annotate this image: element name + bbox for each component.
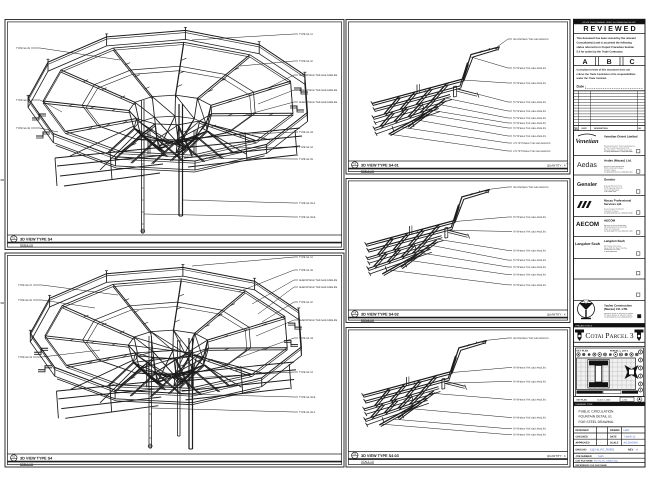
svg-text:This document has been revised: This document has been revised by the re… <box>577 37 636 40</box>
svg-text:75*75*8mm THK G&S ANGLES: 75*75*8mm THK G&S ANGLES <box>513 434 546 437</box>
svg-text:Venetian Orient Limited: Venetian Orient Limited <box>604 134 638 138</box>
svg-text:SHS150*8mm THK G&S ANGLES: SHS150*8mm THK G&S ANGLES <box>513 186 549 189</box>
svg-text:TYPE S4-05 B: TYPE S4-05 B <box>299 396 316 399</box>
svg-text:TYPE S4-08: TYPE S4-08 <box>16 127 31 130</box>
svg-text:TYPE S4-09: TYPE S4-09 <box>18 299 33 302</box>
svg-text:QUANTITY : 4: QUANTITY : 4 <box>547 312 566 316</box>
svg-text:R E V I E W E D: R E V I E W E D <box>583 24 635 33</box>
svg-text:-: - <box>600 435 601 438</box>
svg-text:75*75*8mm THK G&S ANGLES: 75*75*8mm THK G&S ANGLES <box>513 216 546 219</box>
svg-text:TYPE S4-09: TYPE S4-09 <box>16 47 31 50</box>
svg-text:under the Trade Contract.: under the Trade Contract. <box>577 77 608 80</box>
svg-text:A: A <box>582 59 587 66</box>
svg-text:L75 75*75*8mm THK G&S ANGLES: L75 75*75*8mm THK G&S ANGLES <box>513 150 551 153</box>
svg-text:TYPE S4-02: TYPE S4-02 <box>18 284 33 287</box>
svg-text:75*75*8mm THK G&S ANGLES: 75*75*8mm THK G&S ANGLES <box>513 67 546 70</box>
svg-text:5115-B_PC_SN301.dwg: 5115-B_PC_SN301.dwg <box>594 459 618 462</box>
svg-text:75*75*8mm THK G&S ANGLES: 75*75*8mm THK G&S ANGLES <box>513 266 546 269</box>
svg-text:QUANTITY : 4: QUANTITY : 4 <box>547 454 566 458</box>
svg-text:75*75*8mm THK G&S ANGLES: 75*75*8mm THK G&S ANGLES <box>513 127 546 130</box>
svg-text:DRAWING TITLE: DRAWING TITLE <box>576 403 594 406</box>
svg-text:Consultant review of this docu: Consultant review of this document does … <box>577 69 631 72</box>
svg-text:SHS150*8mm THK G&S ANGLES: SHS150*8mm THK G&S ANGLES <box>513 38 549 41</box>
svg-text:Gensler: Gensler <box>604 177 616 181</box>
svg-text:PROJECT TITLE: PROJECT TITLE <box>576 324 593 327</box>
svg-text:-: - <box>600 442 601 445</box>
svg-text:REFERENCE CAD FILE NAME: REFERENCE CAD FILE NAME <box>576 464 608 467</box>
svg-text:SCALE 1:2000: SCALE 1:2000 <box>597 398 611 401</box>
svg-text:Date :: Date : <box>577 85 586 89</box>
svg-text:5.4 for action by the Trade Co: 5.4 for action by the Trade Contractor. <box>577 51 624 54</box>
svg-text:7 - 4: 7 - 4 <box>566 163 571 166</box>
svg-text:75*75*8mm THK G&S ANGLES: 75*75*8mm THK G&S ANGLES <box>513 82 546 85</box>
svg-text:7 - 4: 7 - 4 <box>566 317 571 320</box>
svg-text:TYPE S4-01: TYPE S4-01 <box>299 33 314 36</box>
svg-text:75*75*8mm THK G&S ANGLES: 75*75*8mm THK G&S ANGLES <box>513 110 546 113</box>
svg-text:Aedas (Macau) Ltd.: Aedas (Macau) Ltd. <box>604 158 632 162</box>
svg-text:SHS150*8mm THK G&S ANGLES: SHS150*8mm THK G&S ANGLES <box>299 74 337 77</box>
svg-text:SHS150*8mm THK G&S ANGLES: SHS150*8mm THK G&S ANGLES <box>299 279 337 282</box>
svg-text:3D VIEW TYPE S4-03: 3D VIEW TYPE S4-03 <box>361 454 399 458</box>
svg-text:SHS150*8mm THK G&S ANGLES: SHS150*8mm THK G&S ANGLES <box>299 89 337 92</box>
svg-text:75*75*8mm THK G&S ANGLES: 75*75*8mm THK G&S ANGLES <box>513 367 546 370</box>
svg-text:status referred to in Project: status referred to in Project Procedure … <box>577 46 635 49</box>
svg-text:TYPE S4-05 A: TYPE S4-05 A <box>299 411 315 414</box>
svg-text:TYPE S4-05 A: TYPE S4-05 A <box>299 202 315 205</box>
svg-text:75*75*8mm THK G&S ANGLES: 75*75*8mm THK G&S ANGLES <box>513 398 546 401</box>
svg-text:Aedas: Aedas <box>577 161 597 169</box>
svg-text:75*75*8mm THK G&S ANGLES: 75*75*8mm THK G&S ANGLES <box>513 284 546 287</box>
svg-text:DATE: DATE <box>610 435 617 438</box>
svg-text:DESIGNED: DESIGNED <box>576 429 589 432</box>
svg-text:Services Ltd.: Services Ltd. <box>604 202 622 206</box>
svg-text:FOUNTAIN DETAIL 01: FOUNTAIN DETAIL 01 <box>579 415 612 419</box>
svg-text:B: B <box>607 59 612 66</box>
svg-text:PUBLIC CIRCULATION: PUBLIC CIRCULATION <box>579 410 615 414</box>
svg-text:LWO: LWO <box>624 429 630 432</box>
svg-text:C: C <box>629 59 634 66</box>
svg-text:TYPE S4-02: TYPE S4-02 <box>299 60 314 63</box>
svg-text:AECOM: AECOM <box>604 218 616 222</box>
svg-text:PARCEL 1, LOT 2: PARCEL 1, LOT 2 <box>610 350 629 353</box>
svg-text:TYPE S4-02: TYPE S4-02 <box>16 99 31 102</box>
svg-text:75*75*8mm THK G&S ANGLES: 75*75*8mm THK G&S ANGLES <box>513 380 546 383</box>
svg-text:TYPE S4-01: TYPE S4-01 <box>299 256 314 259</box>
svg-text:1:200: 1:200 <box>622 398 628 401</box>
svg-text:75*75*8mm THK G&S ANGLES: 75*75*8mm THK G&S ANGLES <box>513 117 546 120</box>
svg-text:QUANTITY : 4: QUANTITY : 4 <box>547 163 566 167</box>
svg-text:AS SHOWN: AS SHOWN <box>624 442 638 445</box>
svg-text:TYPE S4-03: TYPE S4-03 <box>18 356 33 359</box>
svg-text:JOB NUMBER: JOB NUMBER <box>576 455 592 458</box>
svg-text:TYPE S4-02: TYPE S4-02 <box>299 301 314 304</box>
svg-text:Consultants(s) and is accorded: Consultants(s) and is accorded the follo… <box>577 41 633 44</box>
svg-text:SHS150*8mm THK G&S ANGLES: SHS150*8mm THK G&S ANGLES <box>299 319 337 322</box>
svg-text:75*75*8mm THK G&S ANGLES: 75*75*8mm THK G&S ANGLES <box>513 122 546 125</box>
svg-text:75*75*8mm THK G&S ANGLES: 75*75*8mm THK G&S ANGLES <box>513 259 546 262</box>
svg-text:3D VIEW TYPE S4: 3D VIEW TYPE S4 <box>20 456 53 460</box>
svg-text:SHS150*8mm THK G&S ANGLES: SHS150*8mm THK G&S ANGLES <box>299 101 337 104</box>
svg-text:7-MAR-15: 7-MAR-15 <box>624 435 636 438</box>
svg-text:75*75*8mm THK G&S ANGLES: 75*75*8mm THK G&S ANGLES <box>513 428 546 431</box>
svg-text:DRAWN: DRAWN <box>610 429 620 432</box>
svg-text:DATE: DATE <box>582 127 588 130</box>
svg-text:CHECKED: CHECKED <box>576 435 589 438</box>
svg-text:KEY PLAN: KEY PLAN <box>577 350 589 353</box>
svg-text:3D VIEW TYPE S4: 3D VIEW TYPE S4 <box>20 237 53 241</box>
svg-text:REV: REV <box>628 449 634 452</box>
svg-text:DWG NO: DWG NO <box>576 449 587 452</box>
svg-text:TYPE S4-03: TYPE S4-03 <box>299 131 314 134</box>
svg-text:TYPE S4-05 B: TYPE S4-05 B <box>299 216 316 219</box>
svg-text:75*75*8mm THK G&S ANGLES: 75*75*8mm THK G&S ANGLES <box>513 274 546 277</box>
svg-text:Langdon·Seah: Langdon·Seah <box>575 242 600 246</box>
svg-text:FOR STEEL DRAWING: FOR STEEL DRAWING <box>579 420 614 424</box>
svg-text:A: A <box>636 448 638 452</box>
svg-text:Langdon Seah: Langdon Seah <box>604 239 625 243</box>
svg-text:TYPE S4-05: TYPE S4-05 <box>299 269 314 272</box>
svg-text:SHS150*8mm THK G&S ANGLES: SHS150*8mm THK G&S ANGLES <box>513 337 549 340</box>
svg-text:75*75*8mm THK G&S ANGLES: 75*75*8mm THK G&S ANGLES <box>513 135 546 138</box>
svg-text:3D VIEW TYPE S4-01: 3D VIEW TYPE S4-01 <box>361 163 399 167</box>
svg-text:75*75*8mm THK G&S ANGLES: 75*75*8mm THK G&S ANGLES <box>513 416 546 419</box>
svg-text:SCALE 1:8: SCALE 1:8 <box>20 463 33 466</box>
svg-text:SCALE: SCALE <box>610 442 619 445</box>
svg-text:3D VIEW TYPE S4-02: 3D VIEW TYPE S4-02 <box>361 312 399 316</box>
svg-text:APPROVED: APPROVED <box>576 442 590 445</box>
svg-text:TYPE S4-05: TYPE S4-05 <box>299 158 314 161</box>
svg-text:5115: 5115 <box>598 455 604 458</box>
svg-text:Gensler: Gensler <box>577 182 598 188</box>
svg-text:DESCRIPTION: DESCRIPTION <box>594 127 608 130</box>
svg-text:75*75*8mm THK G&S ANGLES: 75*75*8mm THK G&S ANGLES <box>513 249 546 252</box>
svg-text:L75 75*75*8mm THK G&S ANGLES: L75 75*75*8mm THK G&S ANGLES <box>513 142 551 145</box>
svg-text:5115-B_PC_SN301: 5115-B_PC_SN301 <box>590 448 615 452</box>
svg-text:TYPE S4-04: TYPE S4-04 <box>299 371 314 374</box>
svg-text:KEY PLAN: KEY PLAN <box>577 398 588 401</box>
svg-text:75*75*8mm THK G&S ANGLES: 75*75*8mm THK G&S ANGLES <box>513 101 546 104</box>
svg-text:Venetian: Venetian <box>575 138 599 145</box>
svg-text:SCALE 1:8: SCALE 1:8 <box>361 319 374 322</box>
svg-text:SCALE 1:8: SCALE 1:8 <box>361 460 374 463</box>
svg-text:AECOM: AECOM <box>576 221 599 228</box>
svg-text:relieve the Trade Contractor o: relieve the Trade Contractor of its resp… <box>577 73 637 76</box>
svg-text:SHS150*8mm THK G&S ANGLES: SHS150*8mm THK G&S ANGLES <box>299 286 337 289</box>
svg-text:TYPE S4-04: TYPE S4-04 <box>299 146 314 149</box>
svg-text:TYPE S4-03: TYPE S4-03 <box>299 337 314 340</box>
svg-text:CAD FILE NAME: CAD FILE NAME <box>576 459 594 462</box>
svg-text:75*75*8mm THK G&S ANGLES: 75*75*8mm THK G&S ANGLES <box>513 230 546 233</box>
svg-text:(Macau) CO. LTD.: (Macau) CO. LTD. <box>604 307 628 311</box>
